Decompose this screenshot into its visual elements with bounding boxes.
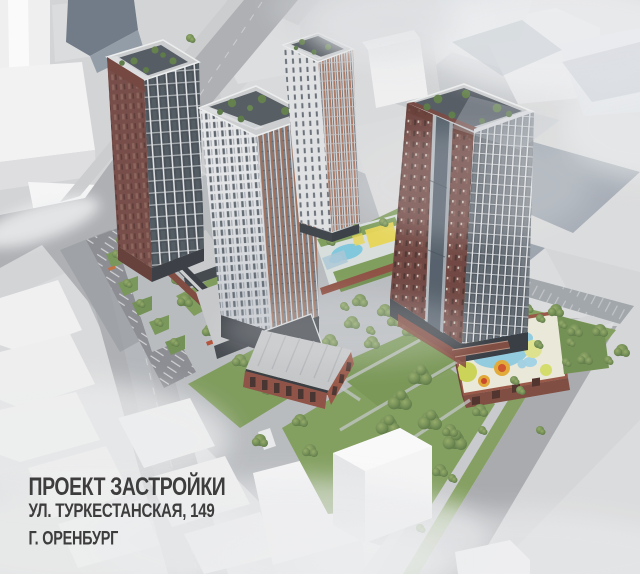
svg-text:УЛ. ТУРКЕСТАНСКАЯ, 149: УЛ. ТУРКЕСТАНСКАЯ, 149: [29, 499, 215, 521]
svg-text:ПРОЕКТ ЗАСТРОЙКИ: ПРОЕКТ ЗАСТРОЙКИ: [29, 473, 226, 501]
svg-text:Г. ОРЕНБУРГ: Г. ОРЕНБУРГ: [29, 528, 119, 549]
